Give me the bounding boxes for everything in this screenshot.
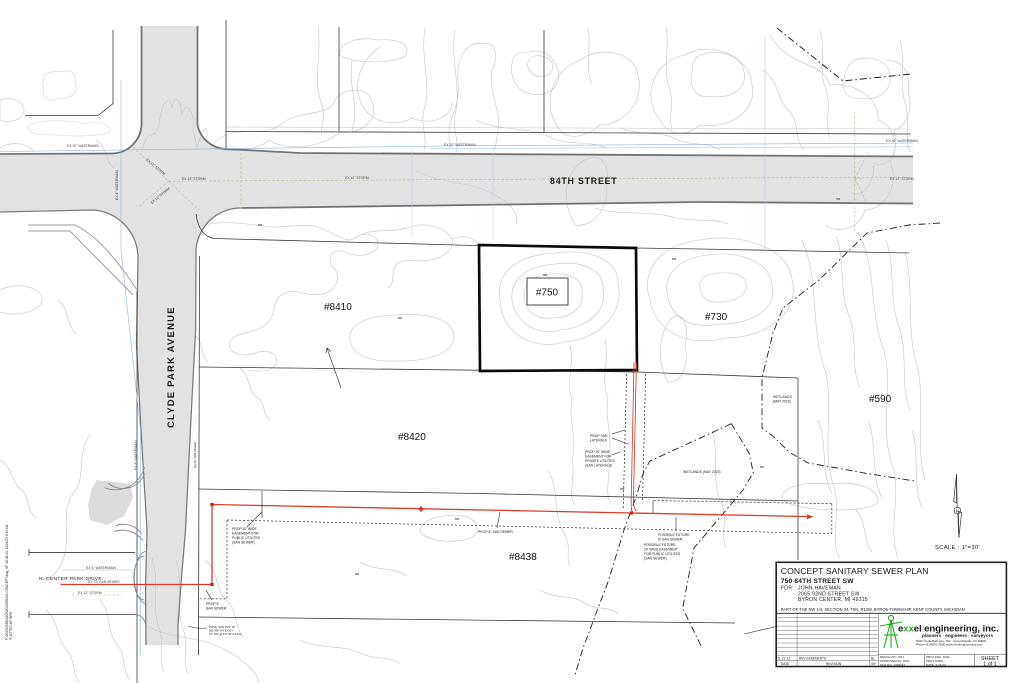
svg-text:EX 8" WATERMAIN: EX 8" WATERMAIN (134, 440, 138, 470)
svg-text:BL: BL (871, 657, 875, 661)
svg-text:PROP 20' WIDE: PROP 20' WIDE (585, 450, 610, 454)
svg-text:(MAY 2023): (MAY 2023) (773, 400, 791, 404)
svg-text:WETLANDS: WETLANDS (773, 395, 793, 399)
svg-text:(SAN LATERALS): (SAN LATERALS) (585, 464, 612, 468)
svg-text:EX 20" WATERMAIN: EX 20" WATERMAIN (444, 143, 476, 147)
svg-text:EX 12" STORM: EX 12" STORM (345, 176, 369, 180)
svg-text:(SAN SEWER): (SAN SEWER) (232, 541, 255, 545)
svg-text:PROP 8" SAN SEWER: PROP 8" SAN SEWER (478, 530, 513, 534)
svg-text:EX 12" STORM: EX 12" STORM (182, 177, 206, 181)
svg-text:WETLANDS (MAY 2023): WETLANDS (MAY 2023) (683, 470, 721, 474)
svg-text:#8420: #8420 (398, 432, 426, 443)
svg-text:EX 20" SAN SEWER: EX 20" SAN SEWER (193, 442, 197, 468)
svg-text:SCALE : 1"=30': SCALE : 1"=30' (935, 545, 980, 551)
svg-text:EX 6" WATERMAIN: EX 6" WATERMAIN (86, 566, 116, 570)
svg-text:EX 12" STORM: EX 12" STORM (890, 177, 914, 181)
svg-text:(SAN SEWER): (SAN SEWER) (644, 557, 667, 561)
svg-text:BYRON CENTER, MI 49315: BYRON CENTER, MI 49315 (798, 597, 868, 603)
svg-text:20' WIDE EASEMENT: 20' WIDE EASEMENT (644, 548, 678, 552)
svg-text:DATE: 9-18-23: DATE: 9-18-23 (926, 663, 946, 667)
svg-text:84TH STREET: 84TH STREET (550, 176, 617, 186)
svg-text:PRIVATE UTILITES: PRIVATE UTILITES (585, 459, 616, 463)
svg-text:REVISION: REVISION (826, 662, 842, 666)
svg-text:PROP 8": PROP 8" (206, 602, 220, 606)
svg-text:CLYDE PARK AVENUE: CLYDE PARK AVENUE (166, 306, 177, 428)
svg-text:PROP SAN: PROP SAN (590, 434, 608, 438)
svg-text:#730: #730 (705, 312, 728, 323)
svg-text:PART OF THE NW 1/4, SECTION 24: PART OF THE NW 1/4, SECTION 24, T6N, R12… (781, 607, 965, 612)
svg-text:#8438: #8438 (509, 552, 537, 563)
svg-text:PLOTTED BY: BRH: PLOTTED BY: BRH (9, 611, 13, 640)
svg-text:N: N (956, 508, 959, 513)
svg-text:72" INV @ 677.84 (FLAG): 72" INV @ 677.84 (FLAG) (209, 632, 242, 636)
svg-text:EASEMENT FOR: EASEMENT FOR (585, 455, 612, 459)
svg-text:884: 884 (543, 273, 548, 277)
svg-text:886: 886 (455, 517, 460, 521)
svg-text:883: 883 (398, 316, 403, 320)
svg-text:FOR:: FOR: (781, 586, 794, 592)
svg-text:887: 887 (760, 465, 765, 469)
svg-text:750 84TH STREET SW: 750 84TH STREET SW (781, 578, 854, 585)
svg-text:planners · engineers · surveyo: planners · engineers · surveyors (922, 633, 993, 638)
svg-text:1 of 1: 1 of 1 (983, 662, 997, 668)
svg-text:#590: #590 (869, 394, 892, 405)
svg-text:LATERALS: LATERALS (590, 439, 608, 443)
svg-text:#8410: #8410 (324, 302, 352, 313)
svg-text:FOR PUBLIC UTILITES: FOR PUBLIC UTILITES (644, 552, 681, 556)
svg-text:PROP 20' WIDE: PROP 20' WIDE (232, 527, 257, 531)
svg-text:EX 20" WATERMAIN: EX 20" WATERMAIN (886, 139, 918, 143)
svg-text:886: 886 (672, 257, 677, 261)
svg-text:EX 12" STORM: EX 12" STORM (78, 591, 102, 595)
svg-text:784: 784 (836, 197, 841, 201)
svg-text:EX 72" SAN SEWER: EX 72" SAN SEWER (88, 580, 120, 584)
svg-text:POSSIBLE FUTURE: POSSIBLE FUTURE (644, 543, 676, 547)
svg-text:PUBLIC UTILITES: PUBLIC UTILITES (232, 536, 261, 540)
svg-text:888: 888 (620, 487, 625, 491)
svg-text:SAN SEWER: SAN SEWER (206, 607, 227, 611)
svg-text:EX 20" WATERMAIN: EX 20" WATERMAIN (67, 144, 99, 148)
svg-text:CONCEPT SANITARY SEWER PLAN: CONCEPT SANITARY SEWER PLAN (781, 566, 929, 576)
svg-text:POSSIBLE FUTURE: POSSIBLE FUTURE (658, 533, 690, 537)
svg-text:#750: #750 (536, 288, 559, 299)
svg-text:885: 885 (258, 223, 263, 227)
svg-text:EX 8" WATERMAIN: EX 8" WATERMAIN (115, 170, 119, 200)
svg-text:DATE: DATE (781, 662, 789, 666)
svg-text:11-21-23: 11-21-23 (778, 657, 791, 661)
svg-text:8" SAN SEWER: 8" SAN SEWER (658, 538, 683, 542)
svg-text:FILE NO: 2338242: FILE NO: 2338242 (880, 663, 905, 667)
svg-text:884: 884 (355, 572, 360, 576)
svg-text:REV EASEMENTS: REV EASEMENTS (799, 657, 826, 661)
svg-text:Phone (616)531-3660 www.exc: Phone (616)531-3660 www.excelengineering… (916, 643, 983, 647)
svg-text:EASEMENT FOR: EASEMENT FOR (232, 532, 259, 536)
